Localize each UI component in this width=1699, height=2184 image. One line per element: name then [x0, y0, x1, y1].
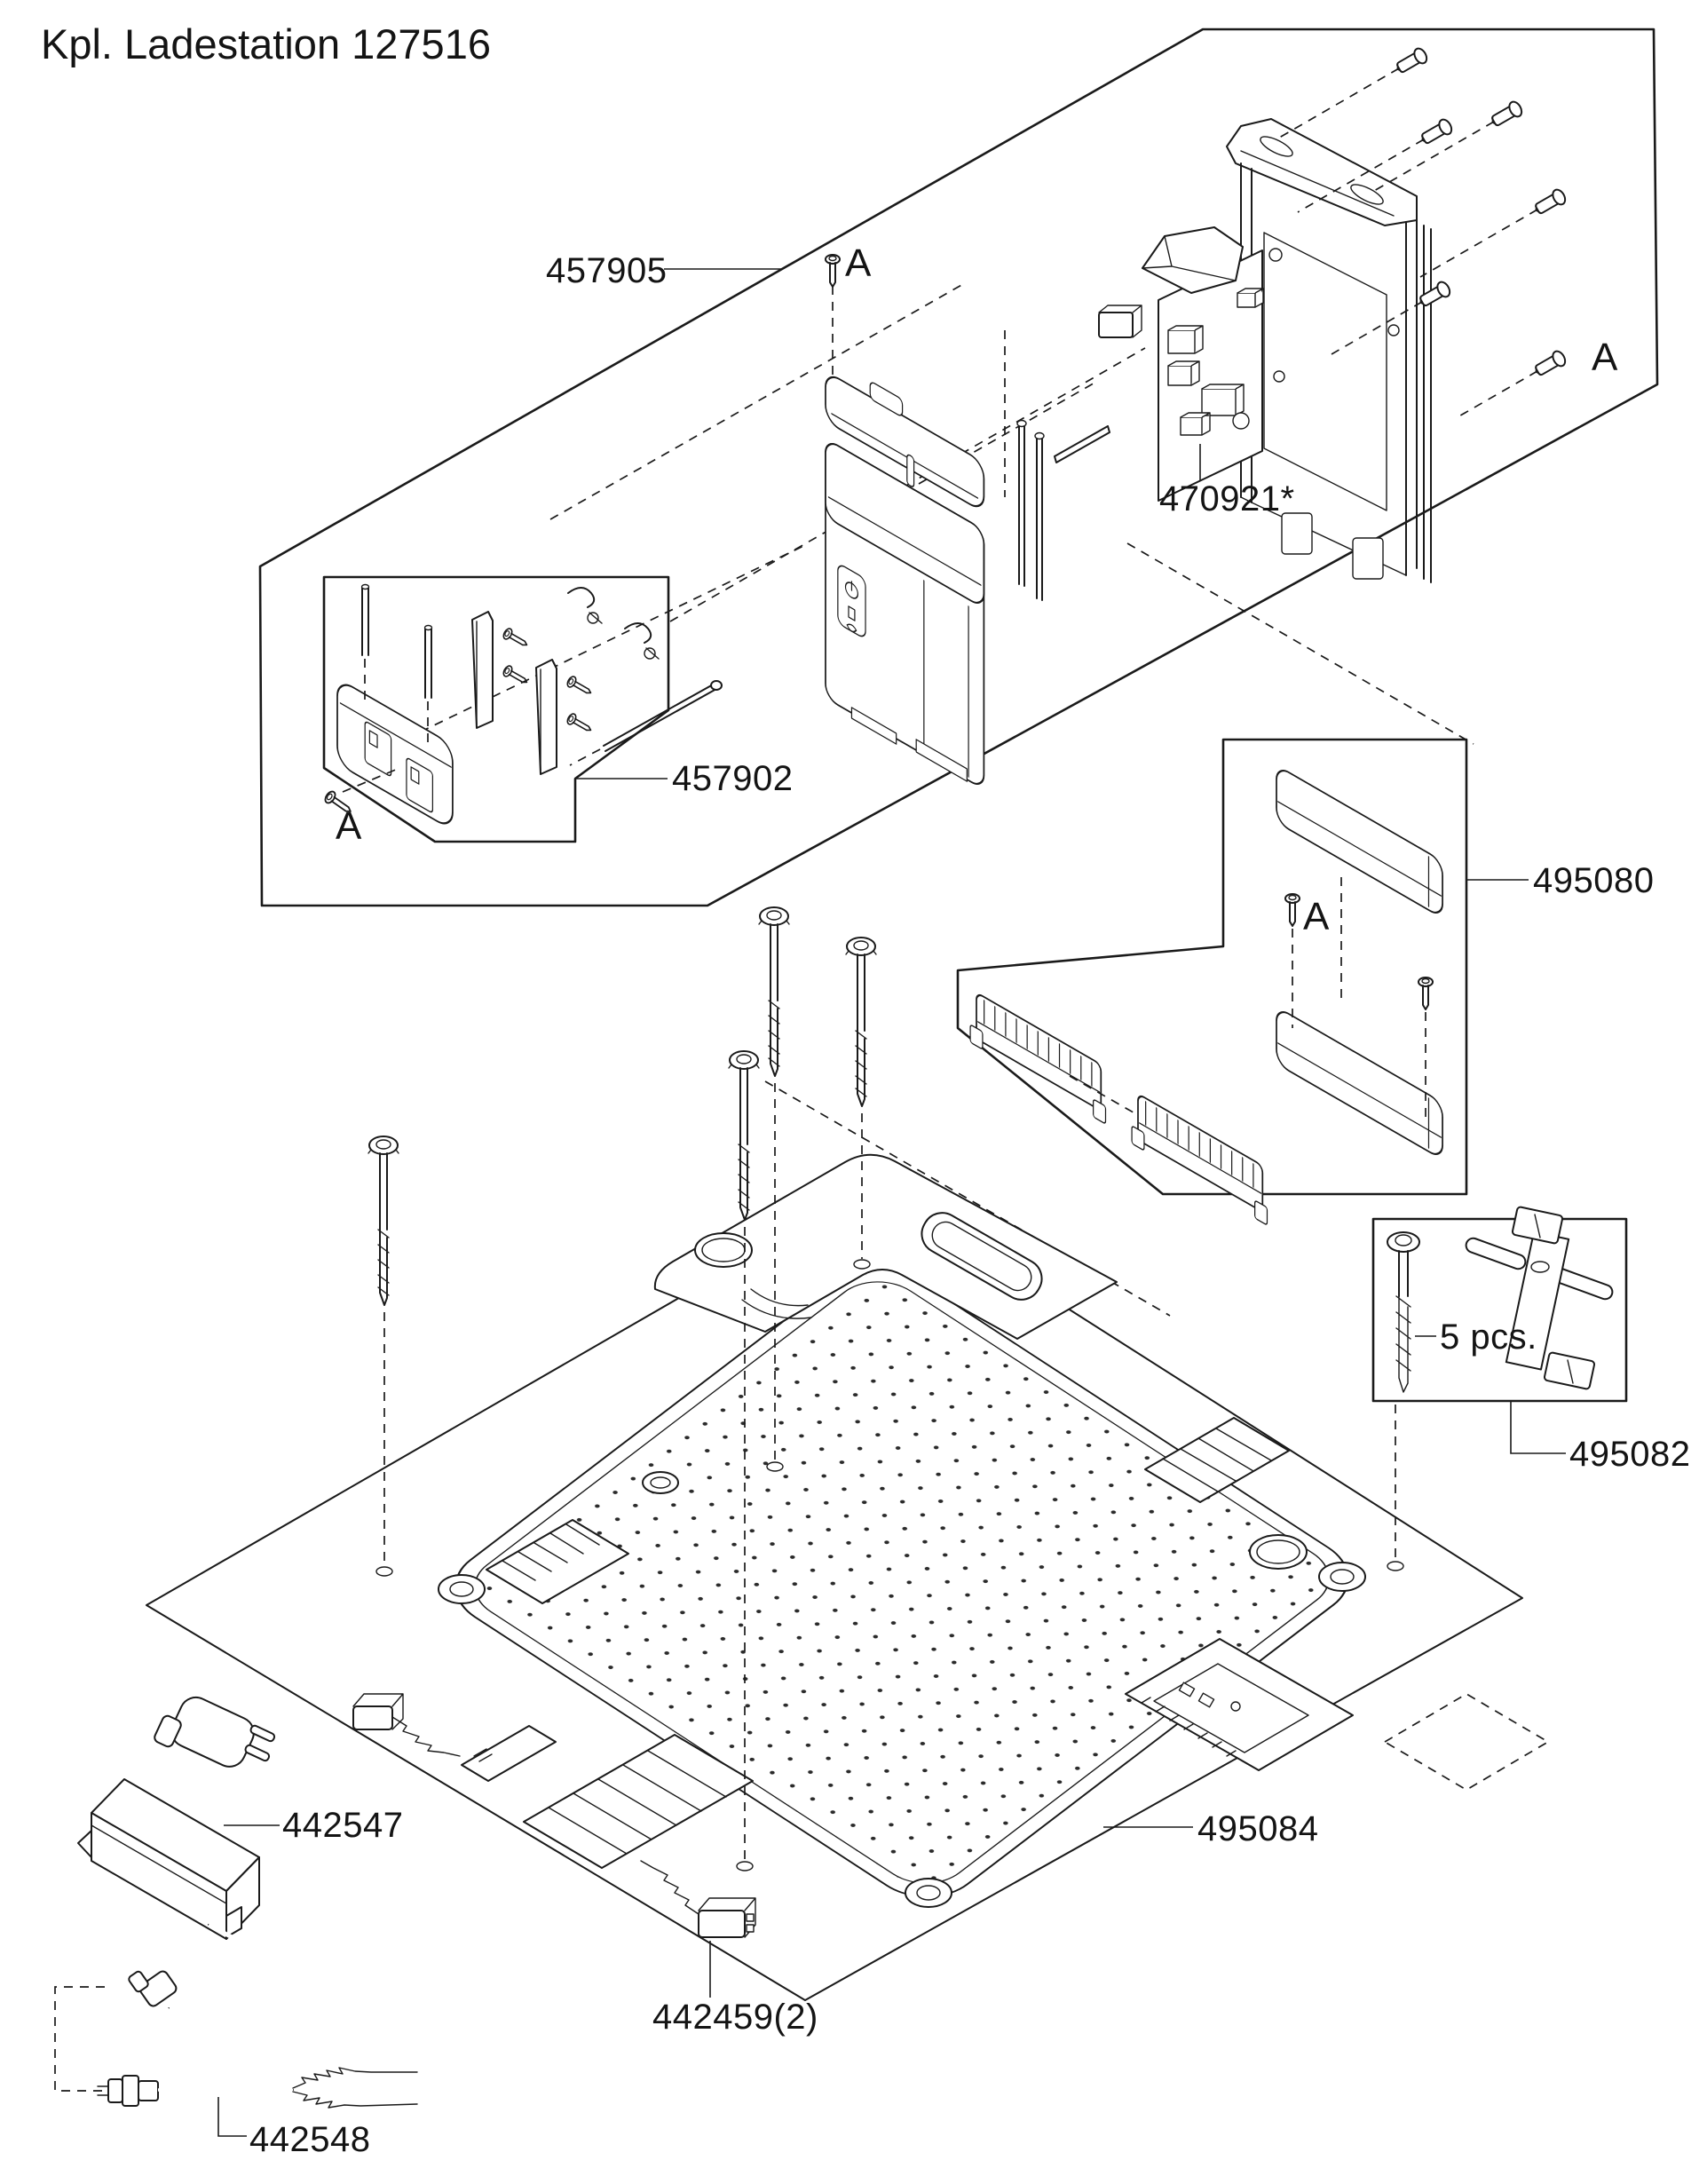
diagram-title: Kpl. Ladestation 127516 — [41, 20, 491, 68]
tool-kit-box — [1373, 1207, 1626, 1563]
part-label-457905: 457905 — [546, 251, 667, 291]
part-label-495084: 495084 — [1197, 1809, 1318, 1849]
charging-tower — [826, 355, 1110, 795]
part-label-495080: 495080 — [1533, 861, 1654, 901]
part-label-470921: 470921* — [1159, 479, 1295, 519]
marker-a-covers: A — [1303, 895, 1329, 939]
marker-a-top: A — [845, 241, 871, 286]
mounting-bolts — [1275, 46, 1568, 418]
part-label-442547: 442547 — [282, 1806, 403, 1846]
part-label-495082: 495082 — [1569, 1435, 1690, 1475]
bumper-kit-box — [323, 577, 722, 842]
exploded-parts-diagram — [0, 0, 1699, 2184]
power-supply-442547 — [55, 1692, 330, 2091]
connector-442459-bottom — [641, 1861, 755, 1998]
part-label-457902: 457902 — [672, 759, 793, 799]
marker-a-bumper: A — [336, 804, 361, 849]
quantity-note: 5 pcs. — [1440, 1318, 1537, 1357]
part-label-442548: 442548 — [249, 2120, 370, 2160]
screw-a-top — [826, 255, 840, 287]
part-label-442459: 442459(2) — [652, 1998, 818, 2038]
cover-kit-box — [958, 740, 1529, 1225]
connector-442459-left — [353, 1694, 460, 1756]
parts-diagram-page: Kpl. Ladestation 127516 457905 470921* 4… — [0, 0, 1699, 2184]
marker-a-right: A — [1592, 336, 1617, 380]
